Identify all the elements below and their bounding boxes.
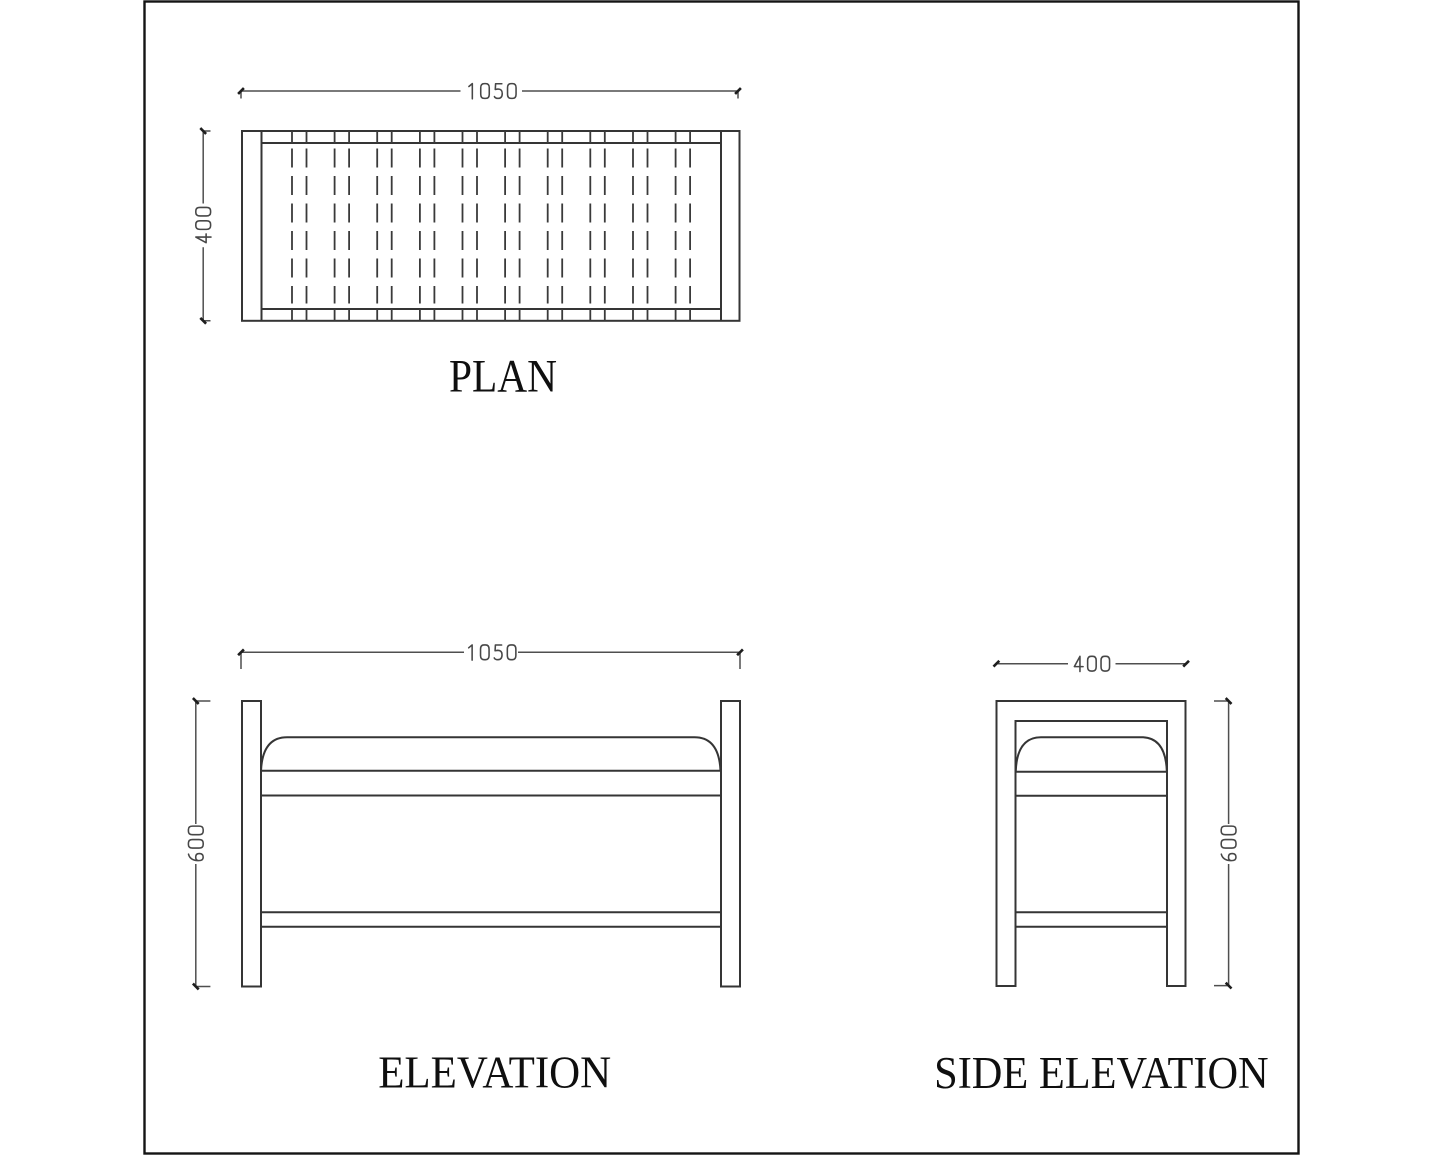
svg-text:ELEVATION: ELEVATION	[378, 1048, 611, 1098]
svg-text:SIDE ELEVATION: SIDE ELEVATION	[934, 1047, 1269, 1098]
svg-text:PLAN: PLAN	[449, 351, 557, 403]
